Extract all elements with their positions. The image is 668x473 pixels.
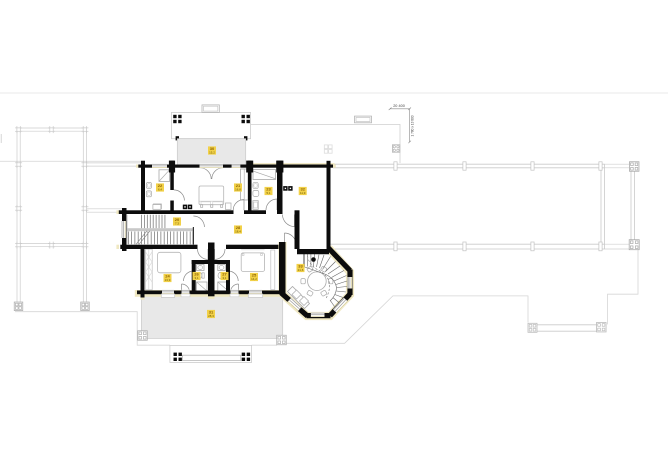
svg-text:21,6: 21,6 (298, 268, 304, 272)
svg-text:6,4: 6,4 (158, 188, 162, 192)
svg-text:5,1: 5,1 (266, 191, 270, 195)
svg-text:3,1: 3,1 (194, 276, 198, 280)
svg-text:14,2: 14,2 (251, 277, 257, 281)
svg-text:1 780 x 13 800: 1 780 x 13 800 (411, 115, 415, 136)
svg-text:20 400: 20 400 (393, 104, 405, 108)
svg-text:18,4: 18,4 (235, 230, 241, 234)
svg-text:11,9: 11,9 (300, 191, 306, 195)
svg-text:16,8: 16,8 (235, 188, 241, 192)
svg-text:13,9: 13,9 (165, 278, 171, 282)
svg-text:28,3: 28,3 (208, 314, 214, 318)
svg-text:7,3: 7,3 (175, 222, 179, 226)
svg-text:15,2: 15,2 (209, 151, 215, 155)
svg-text:3,1: 3,1 (222, 276, 226, 280)
